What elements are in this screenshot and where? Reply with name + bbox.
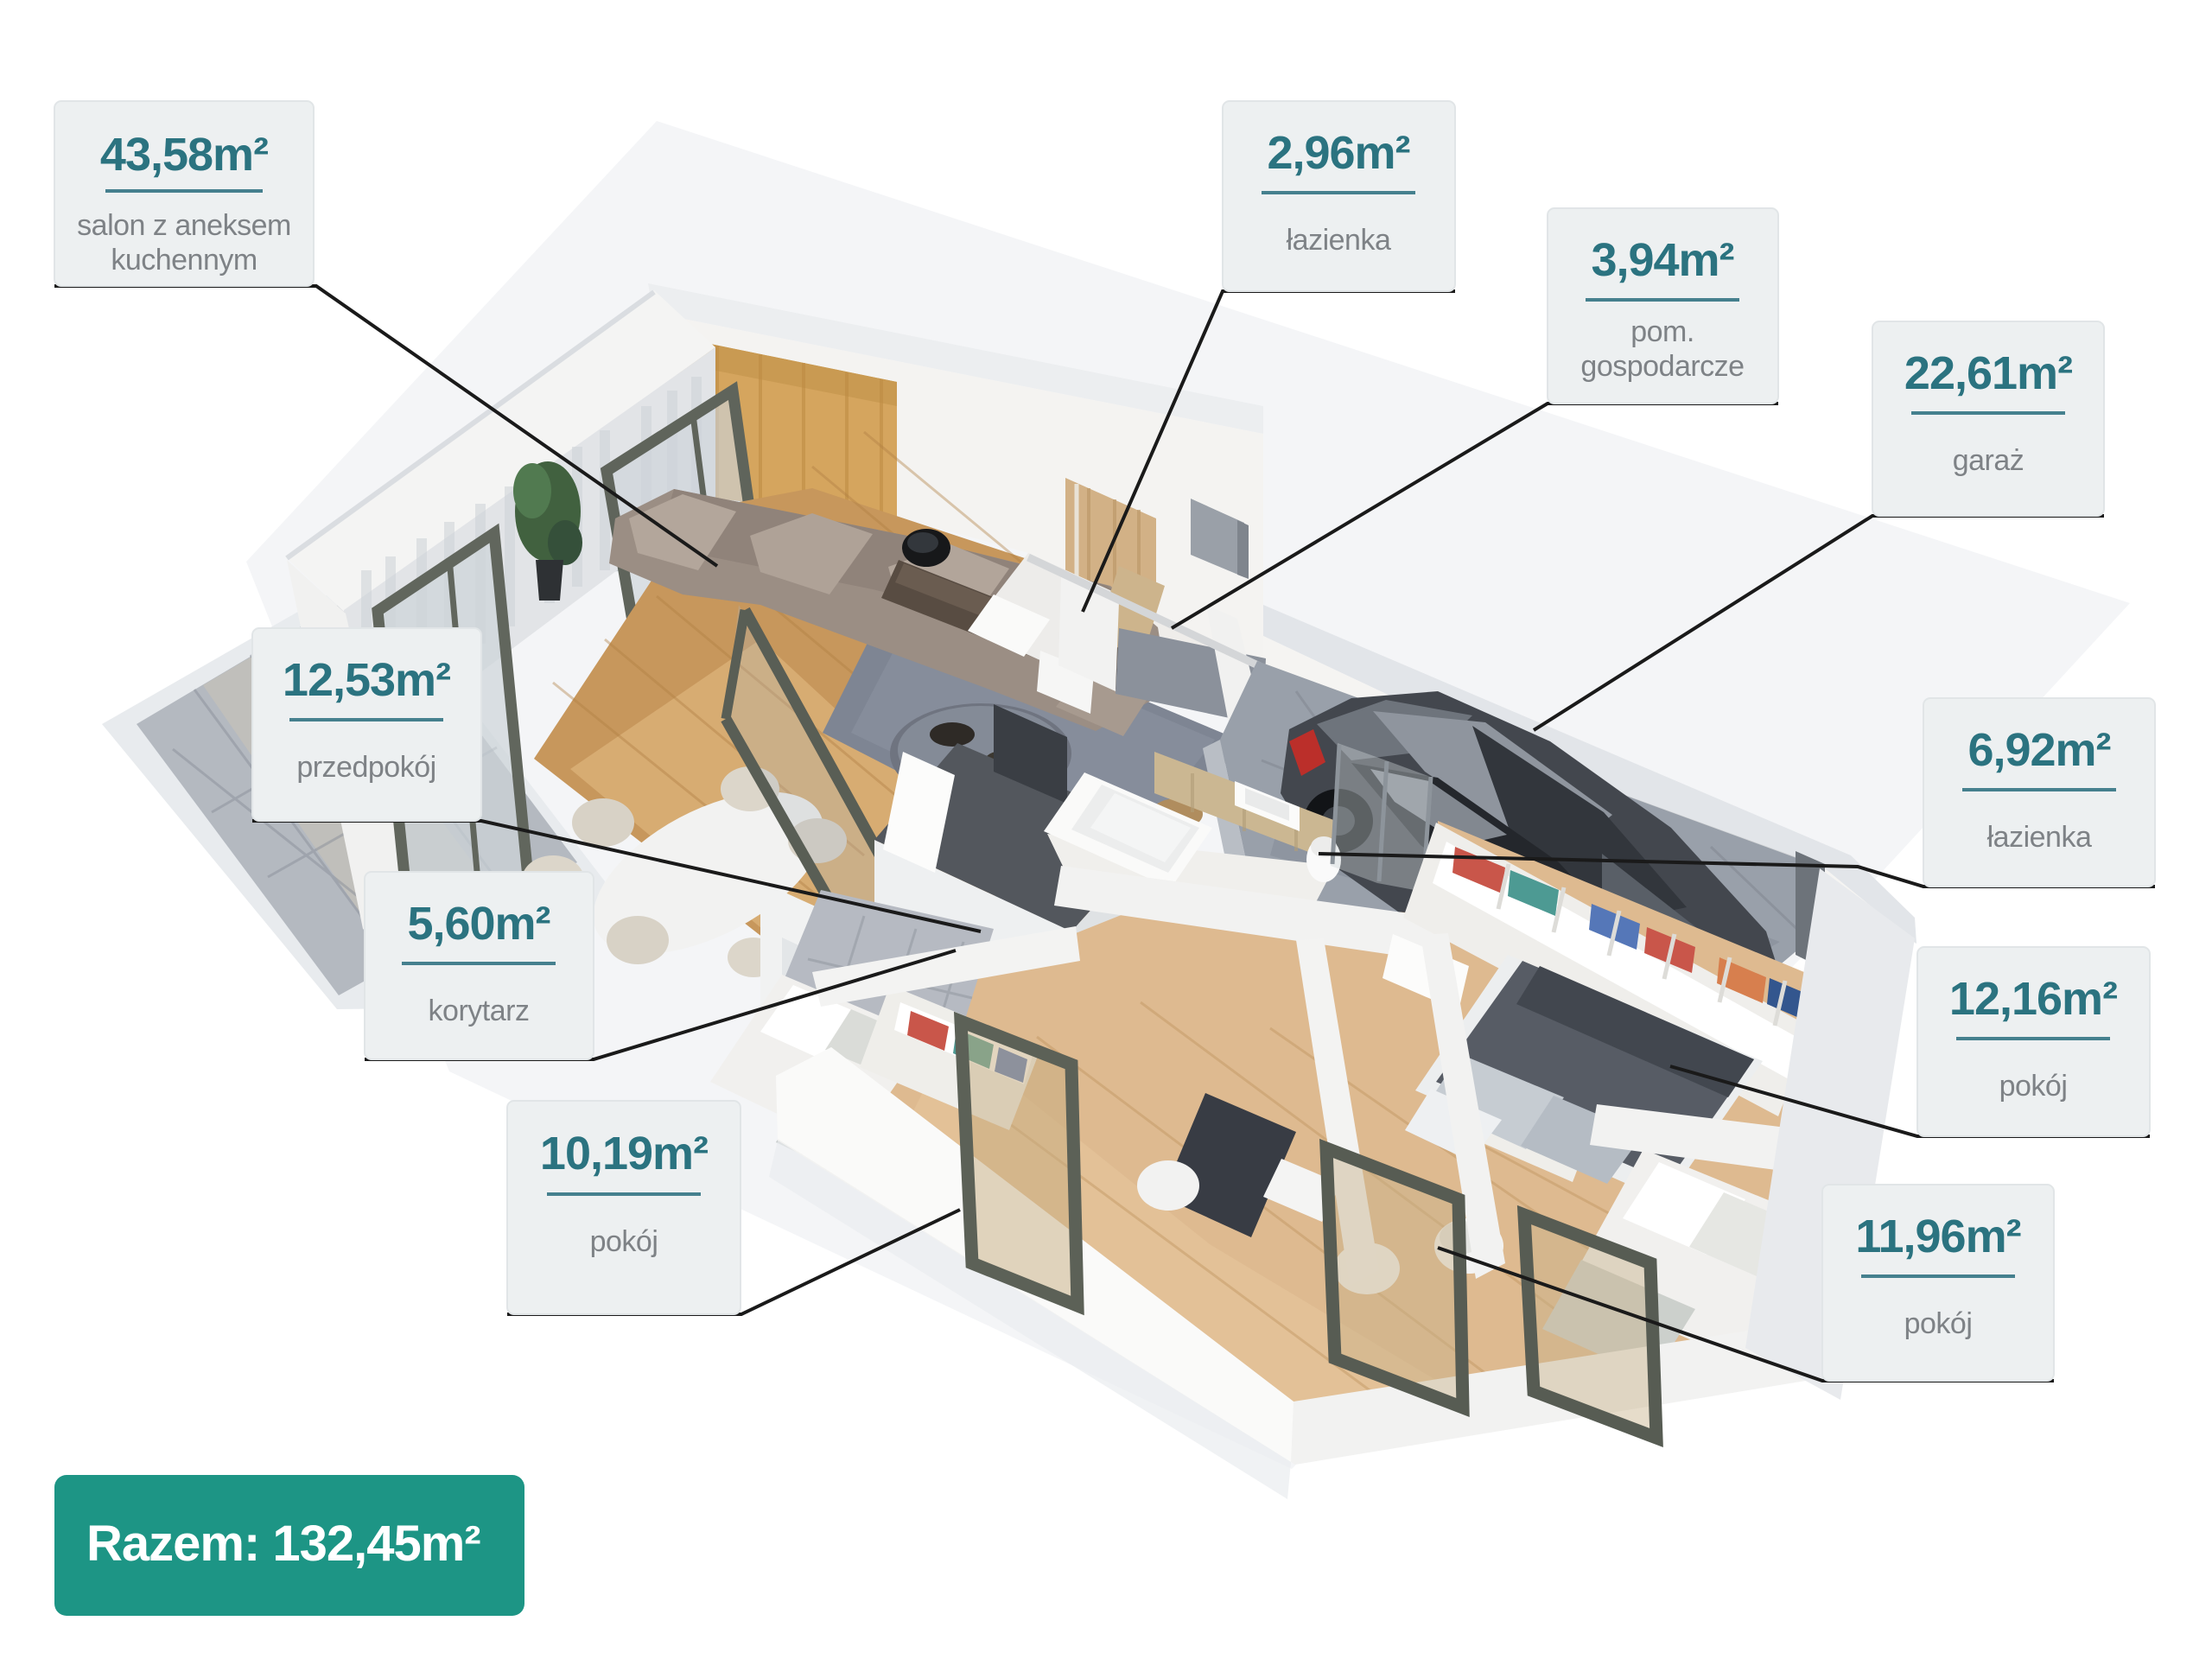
svg-text:łazienka: łazienka — [1987, 821, 2092, 854]
svg-text:przedpokój: przedpokój — [296, 751, 435, 784]
svg-text:pokój: pokój — [1904, 1307, 1973, 1340]
svg-text:6,92m²: 6,92m² — [1967, 724, 2110, 776]
svg-text:korytarz: korytarz — [429, 995, 530, 1027]
svg-text:kuchennym: kuchennym — [111, 244, 257, 276]
svg-text:pom.: pom. — [1630, 315, 1694, 348]
svg-text:łazienka: łazienka — [1287, 224, 1391, 257]
svg-text:salon z aneksem: salon z aneksem — [77, 209, 291, 242]
svg-text:Razem: 132,45m²: Razem: 132,45m² — [86, 1516, 480, 1572]
svg-text:43,58m²: 43,58m² — [100, 129, 268, 181]
svg-text:pokój: pokój — [590, 1225, 658, 1258]
svg-text:garaż: garaż — [1953, 444, 2024, 477]
svg-text:12,16m²: 12,16m² — [1949, 973, 2117, 1025]
svg-text:pokój: pokój — [1999, 1070, 2068, 1103]
svg-text:2,96m²: 2,96m² — [1267, 127, 1409, 179]
svg-text:11,96m²: 11,96m² — [1855, 1211, 2020, 1262]
svg-text:gospodarcze: gospodarcze — [1580, 350, 1744, 383]
svg-text:10,19m²: 10,19m² — [540, 1128, 708, 1179]
svg-text:5,60m²: 5,60m² — [407, 898, 550, 950]
svg-text:12,53m²: 12,53m² — [283, 654, 450, 706]
svg-text:22,61m²: 22,61m² — [1904, 347, 2072, 399]
svg-text:3,94m²: 3,94m² — [1591, 234, 1733, 286]
